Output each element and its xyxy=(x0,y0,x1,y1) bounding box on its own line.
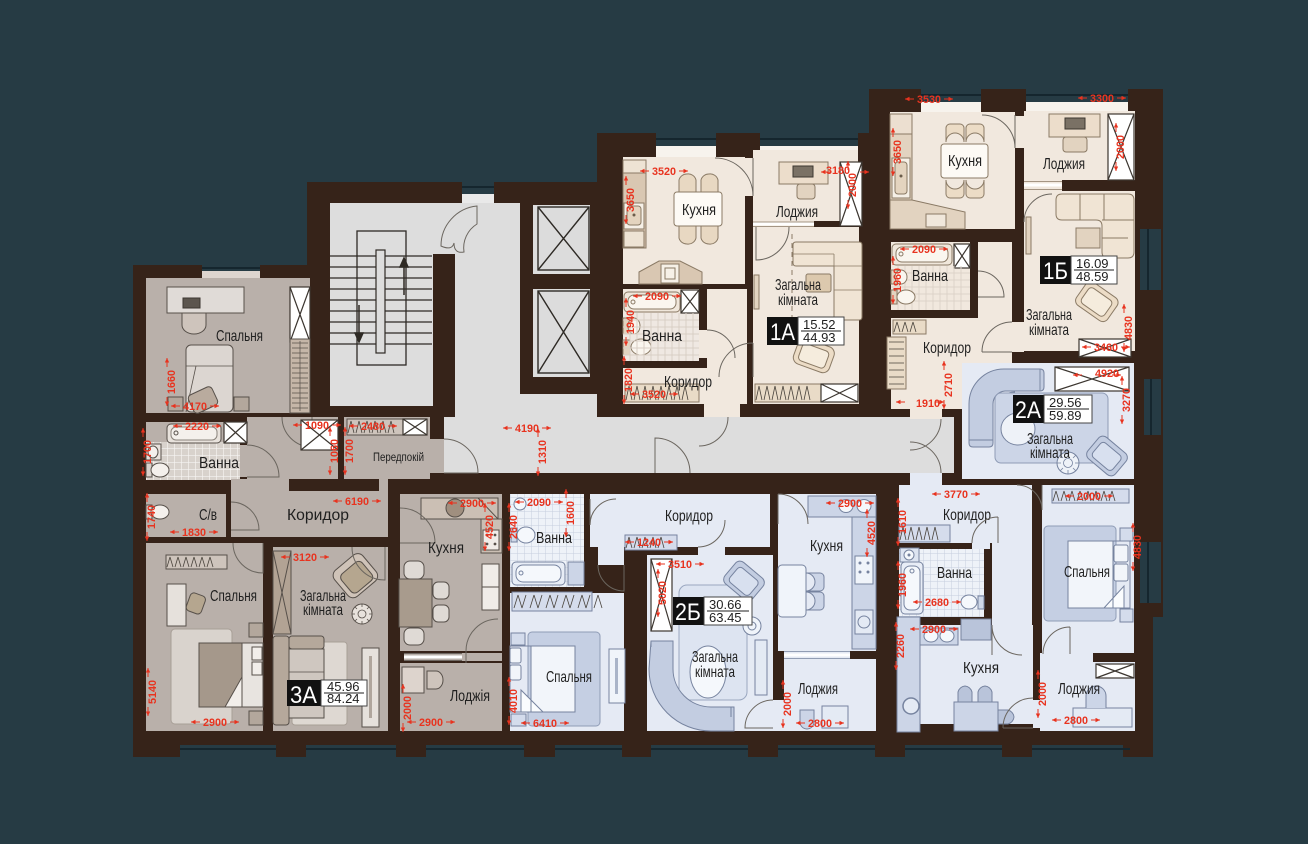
svg-text:кімната: кімната xyxy=(1029,322,1069,339)
svg-text:2000: 2000 xyxy=(402,696,414,720)
svg-text:2480: 2480 xyxy=(361,421,385,433)
svg-text:2800: 2800 xyxy=(1064,715,1088,727)
svg-text:2900: 2900 xyxy=(460,498,484,510)
svg-text:Коридор: Коридор xyxy=(923,340,971,357)
svg-text:3770: 3770 xyxy=(944,489,968,501)
svg-text:2000: 2000 xyxy=(782,692,794,716)
svg-text:1090: 1090 xyxy=(305,420,329,432)
svg-text:2220: 2220 xyxy=(185,421,209,433)
svg-text:2090: 2090 xyxy=(645,291,669,303)
svg-text:3300: 3300 xyxy=(1090,93,1114,105)
svg-text:Кухня: Кухня xyxy=(428,540,464,557)
svg-text:4170: 4170 xyxy=(183,401,207,413)
svg-text:Ванна: Ванна xyxy=(937,565,972,582)
svg-text:1600: 1600 xyxy=(565,501,577,525)
svg-text:2900: 2900 xyxy=(419,717,443,729)
svg-text:3530: 3530 xyxy=(917,94,941,106)
svg-text:4520: 4520 xyxy=(484,515,496,539)
svg-text:Спальня: Спальня xyxy=(216,328,263,345)
svg-text:2800: 2800 xyxy=(808,718,832,730)
svg-text:3650: 3650 xyxy=(625,188,637,212)
svg-text:1820: 1820 xyxy=(623,368,635,392)
svg-text:1700: 1700 xyxy=(344,439,356,463)
svg-text:1Б: 1Б xyxy=(1043,258,1068,285)
svg-text:кімната: кімната xyxy=(778,292,818,309)
svg-text:2710: 2710 xyxy=(943,373,955,397)
svg-text:1700: 1700 xyxy=(142,440,154,464)
svg-text:2А: 2А xyxy=(1015,397,1041,424)
svg-text:Коридор: Коридор xyxy=(664,374,712,391)
svg-text:3520: 3520 xyxy=(642,389,666,401)
svg-text:2900: 2900 xyxy=(203,717,227,729)
svg-text:С/в: С/в xyxy=(199,507,217,524)
svg-text:Лоджия: Лоджия xyxy=(776,204,818,221)
svg-text:Коридор: Коридор xyxy=(287,507,349,524)
svg-text:3460: 3460 xyxy=(1094,342,1118,354)
svg-text:2090: 2090 xyxy=(912,244,936,256)
svg-text:Кухня: Кухня xyxy=(948,153,982,170)
svg-text:2000: 2000 xyxy=(1077,491,1101,503)
svg-text:5020: 5020 xyxy=(657,581,669,605)
svg-text:2000: 2000 xyxy=(1037,682,1049,706)
svg-text:1910: 1910 xyxy=(916,398,940,410)
svg-text:Ванна: Ванна xyxy=(912,268,948,285)
svg-text:Лоджия: Лоджия xyxy=(1043,156,1085,173)
svg-text:1740: 1740 xyxy=(146,505,158,529)
svg-text:2000: 2000 xyxy=(1115,135,1127,159)
svg-text:3520: 3520 xyxy=(652,166,676,178)
svg-text:Лоджия: Лоджия xyxy=(1058,681,1100,698)
svg-text:84.24: 84.24 xyxy=(327,691,360,706)
svg-text:1960: 1960 xyxy=(892,268,904,292)
svg-text:1240: 1240 xyxy=(637,537,661,549)
svg-text:Спальня: Спальня xyxy=(210,588,257,605)
svg-text:Лоджія: Лоджія xyxy=(450,688,490,705)
svg-text:2000: 2000 xyxy=(847,173,859,197)
svg-text:Кухня: Кухня xyxy=(810,538,843,555)
svg-text:44.93: 44.93 xyxy=(803,330,836,345)
svg-text:6410: 6410 xyxy=(533,718,557,730)
svg-text:Кухня: Кухня xyxy=(682,202,716,219)
svg-text:1А: 1А xyxy=(770,319,795,346)
svg-text:Лоджия: Лоджия xyxy=(798,681,838,698)
svg-text:Кухня: Кухня xyxy=(963,660,999,677)
svg-text:2900: 2900 xyxy=(838,498,862,510)
svg-text:Спальня: Спальня xyxy=(546,669,592,686)
svg-text:3120: 3120 xyxy=(293,552,317,564)
svg-text:3510: 3510 xyxy=(668,559,692,571)
svg-text:2260: 2260 xyxy=(895,634,907,658)
svg-text:1060: 1060 xyxy=(329,439,341,463)
svg-text:59.89: 59.89 xyxy=(1049,408,1082,423)
svg-text:Спальня: Спальня xyxy=(1064,564,1110,581)
svg-text:Ванна: Ванна xyxy=(642,328,682,345)
svg-text:1310: 1310 xyxy=(537,440,549,464)
svg-text:4190: 4190 xyxy=(515,423,539,435)
svg-text:2090: 2090 xyxy=(527,497,551,509)
svg-text:2680: 2680 xyxy=(925,597,949,609)
svg-text:Передпокій: Передпокій xyxy=(373,450,424,464)
svg-text:1660: 1660 xyxy=(166,370,178,394)
svg-text:3270: 3270 xyxy=(1121,388,1133,412)
svg-text:1960: 1960 xyxy=(897,573,909,597)
svg-text:1610: 1610 xyxy=(897,510,909,534)
svg-text:3А: 3А xyxy=(290,682,317,709)
svg-text:4520: 4520 xyxy=(866,521,878,545)
svg-text:48.59: 48.59 xyxy=(1076,269,1109,284)
svg-text:кімната: кімната xyxy=(1030,445,1070,462)
svg-text:2640: 2640 xyxy=(508,515,520,539)
svg-text:кімната: кімната xyxy=(303,602,343,619)
svg-text:1830: 1830 xyxy=(182,527,206,539)
svg-text:2Б: 2Б xyxy=(675,599,701,626)
svg-text:4920: 4920 xyxy=(1095,368,1119,380)
svg-text:6190: 6190 xyxy=(345,496,369,508)
svg-text:2900: 2900 xyxy=(922,624,946,636)
svg-text:3650: 3650 xyxy=(892,140,904,164)
svg-text:4010: 4010 xyxy=(508,689,520,713)
svg-text:5140: 5140 xyxy=(147,680,159,704)
svg-text:63.45: 63.45 xyxy=(709,610,742,625)
svg-text:Ванна: Ванна xyxy=(199,455,239,472)
svg-text:Коридор: Коридор xyxy=(665,508,713,525)
svg-text:кімната: кімната xyxy=(695,664,735,681)
svg-text:4830: 4830 xyxy=(1132,535,1144,559)
svg-text:4830: 4830 xyxy=(1123,316,1135,340)
svg-text:Ванна: Ванна xyxy=(536,530,572,547)
svg-text:1940: 1940 xyxy=(625,310,637,334)
